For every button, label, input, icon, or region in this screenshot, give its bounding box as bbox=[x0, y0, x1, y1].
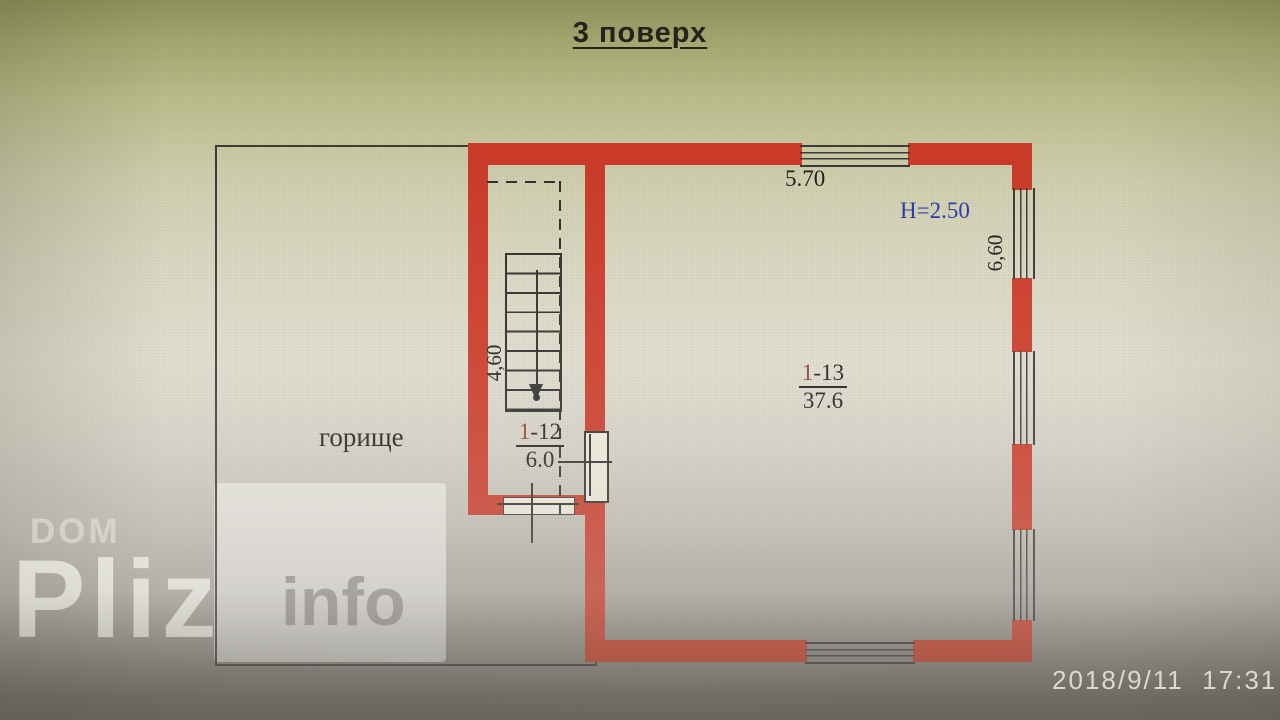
chimney-cross-vertical bbox=[531, 483, 533, 543]
dashed-line-top bbox=[487, 181, 561, 183]
room-stair-number: 1-12 bbox=[516, 419, 564, 447]
vent-cross-vertical bbox=[589, 434, 591, 496]
watermark-pliz: Pliz bbox=[12, 545, 222, 655]
wall-bottom-right bbox=[913, 640, 1032, 662]
stair-direction-line bbox=[536, 270, 538, 388]
room-stair-area: 6.0 bbox=[508, 447, 572, 473]
wall-stairwell-left bbox=[468, 143, 488, 515]
watermark-info: info bbox=[281, 568, 406, 636]
room-main-area: 37.6 bbox=[786, 388, 860, 414]
window-symbol-right-1 bbox=[1013, 188, 1035, 279]
room-main-number: 1-13 bbox=[799, 360, 847, 388]
wall-right-segment-1 bbox=[1012, 143, 1032, 190]
room-main-label: 1-13 37.6 bbox=[786, 360, 860, 414]
dimension-top: 5.70 bbox=[785, 166, 825, 191]
window-symbol-right-3 bbox=[1013, 529, 1035, 621]
dimension-right: 6,60 bbox=[984, 223, 1008, 283]
floor-plan-photo: 3 поверх bbox=[0, 0, 1280, 720]
wall-bottom-left bbox=[585, 640, 807, 662]
stair-direction-dot bbox=[533, 394, 540, 401]
dimension-stairwell: 4,60 bbox=[483, 333, 507, 393]
attic-label: горище bbox=[319, 423, 404, 453]
window-symbol-right-2 bbox=[1013, 351, 1035, 445]
wall-top-left bbox=[470, 143, 802, 165]
wall-main-left-lower bbox=[585, 498, 605, 662]
window-symbol-top bbox=[800, 145, 910, 167]
room-stair-label: 1-12 6.0 bbox=[508, 419, 572, 473]
wall-right-segment-2 bbox=[1012, 278, 1032, 352]
ceiling-height-label: H=2.50 bbox=[900, 198, 970, 223]
wall-stairwell-right bbox=[585, 143, 605, 433]
chimney-cross-horizontal bbox=[497, 503, 579, 505]
wall-right-segment-3 bbox=[1012, 444, 1032, 530]
chimney-opening bbox=[503, 497, 575, 515]
vent-shaft bbox=[584, 431, 609, 503]
photo-timestamp: 2018/9/11 17:31 bbox=[1052, 665, 1277, 696]
window-symbol-bottom bbox=[805, 642, 915, 664]
